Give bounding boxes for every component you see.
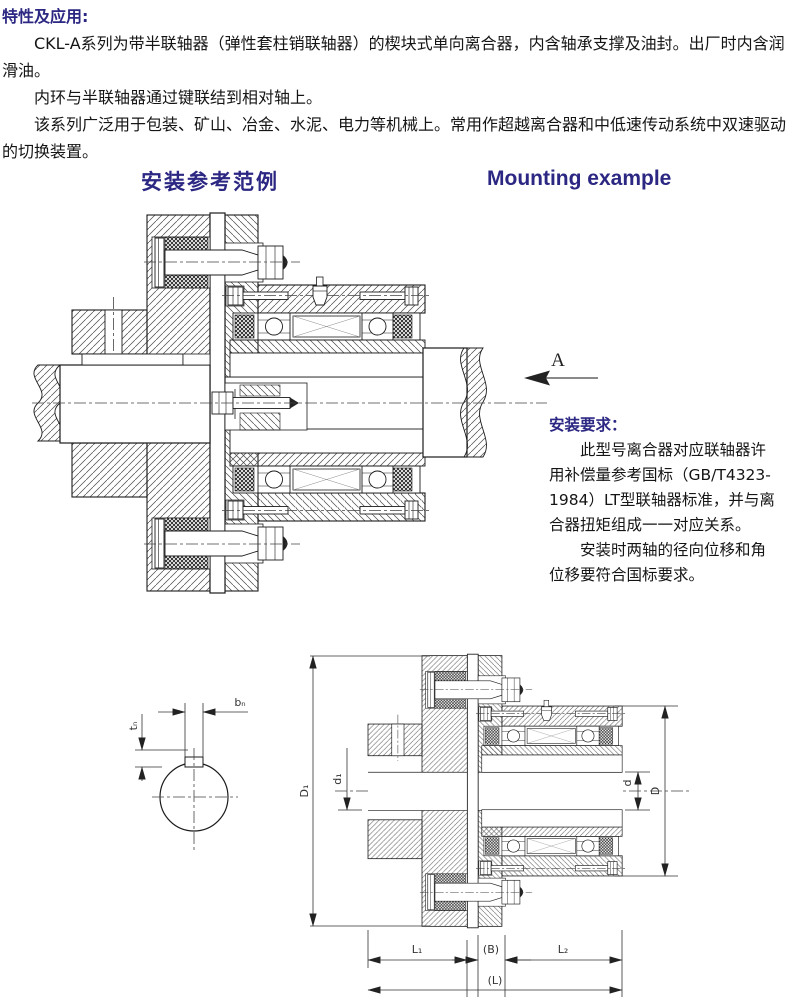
- key: [82, 354, 183, 365]
- dim-label-B: (B): [483, 943, 499, 956]
- technical-drawings: A bₙ tₙ: [0, 0, 800, 1001]
- dimensioned-drawing: bₙ tₙ D₁ d₁ d: [127, 654, 692, 997]
- mounting-example-drawing: A: [32, 213, 598, 593]
- dim-label-tn: tₙ: [127, 722, 140, 731]
- dim-label-d1: d₁: [331, 773, 344, 784]
- dim-label-L: (L): [488, 974, 503, 987]
- view-label-a: A: [551, 350, 565, 371]
- dim-label-D1: D₁: [298, 785, 311, 798]
- dim-label-L1: L₁: [412, 943, 423, 956]
- dim-label-D: D: [649, 787, 662, 795]
- dim-label-d: d: [621, 780, 634, 787]
- catalog-page: 特性及应用: CKL-A系列为带半联轴器（弹性套柱销联轴器）的楔块式单向离合器，…: [0, 0, 800, 1001]
- dim-label-bn: bₙ: [234, 696, 245, 709]
- dim-label-L2: L₂: [558, 943, 569, 956]
- keyway-detail: bₙ tₙ: [127, 696, 248, 852]
- view-arrow-a: A: [524, 350, 598, 386]
